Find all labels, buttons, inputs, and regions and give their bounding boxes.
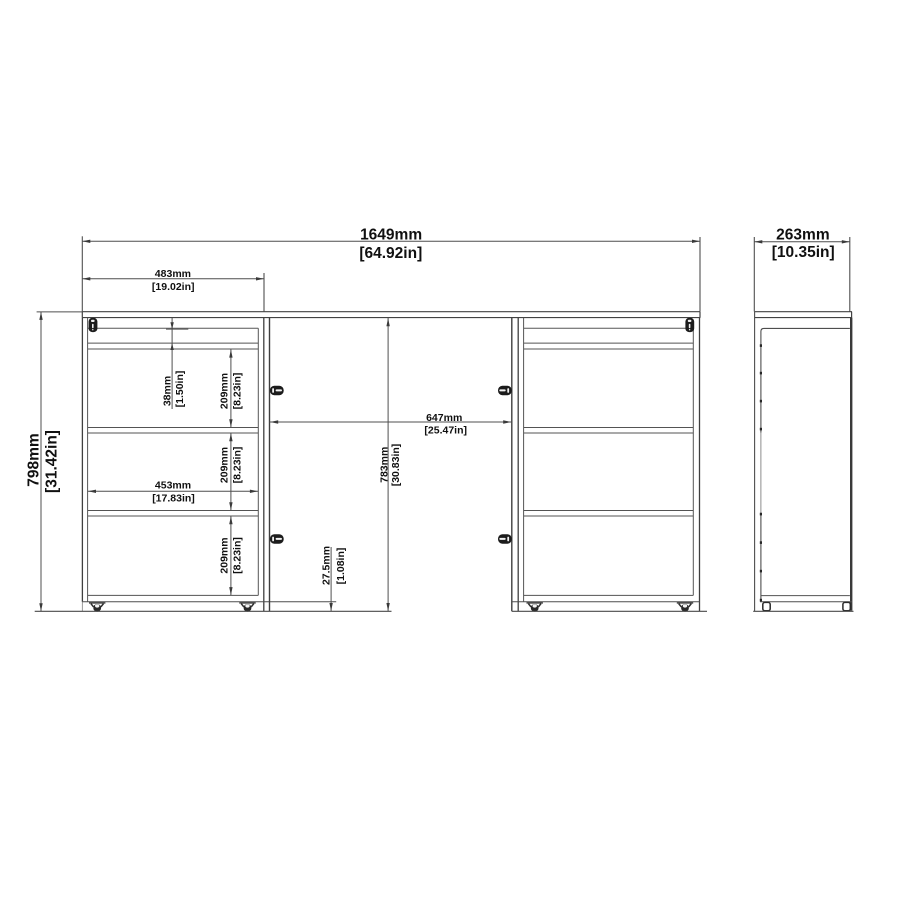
svg-text:1649mm: 1649mm — [360, 227, 422, 244]
svg-text:783mm: 783mm — [378, 447, 390, 483]
svg-text:483mm: 483mm — [155, 268, 191, 280]
svg-text:[31.42in]: [31.42in] — [44, 430, 61, 493]
svg-text:[10.35in]: [10.35in] — [772, 244, 835, 261]
svg-text:[8.23in]: [8.23in] — [231, 537, 243, 574]
svg-text:38mm: 38mm — [162, 376, 174, 406]
svg-text:[25.47in]: [25.47in] — [424, 425, 467, 437]
svg-text:[8.23in]: [8.23in] — [231, 447, 243, 484]
svg-text:[17.83in]: [17.83in] — [152, 492, 195, 504]
svg-text:647mm: 647mm — [426, 412, 462, 424]
svg-text:209mm: 209mm — [219, 373, 231, 409]
svg-text:[8.23in]: [8.23in] — [231, 373, 243, 410]
svg-text:453mm: 453mm — [155, 479, 191, 491]
svg-text:798mm: 798mm — [26, 433, 43, 486]
svg-text:209mm: 209mm — [219, 537, 231, 573]
svg-text:[30.83in]: [30.83in] — [390, 444, 402, 487]
svg-text:[19.02in]: [19.02in] — [152, 281, 195, 293]
svg-text:209mm: 209mm — [219, 447, 231, 483]
svg-text:[1.08in]: [1.08in] — [335, 548, 347, 585]
svg-text:263mm: 263mm — [776, 227, 829, 244]
svg-text:27.5mm: 27.5mm — [321, 546, 333, 585]
svg-text:[64.92in]: [64.92in] — [359, 245, 422, 262]
svg-text:[1.50in]: [1.50in] — [174, 371, 186, 408]
